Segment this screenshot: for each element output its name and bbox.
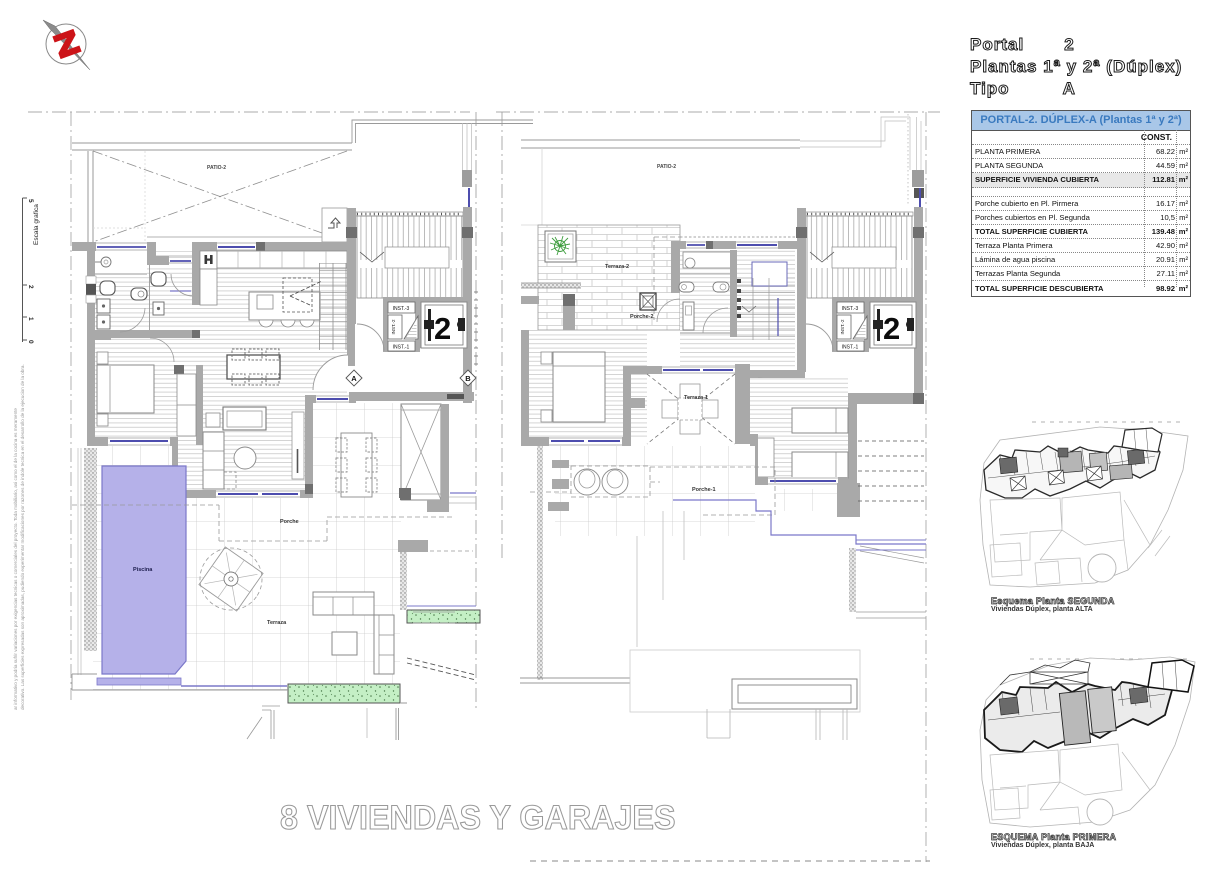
svg-text:INST.-3: INST.-3 [842,306,859,312]
svg-text:Terraza: Terraza [267,620,287,626]
svg-text:Piscina: Piscina [133,567,153,573]
svg-text:INST.-1: INST.-1 [393,345,410,351]
svg-text:INST.-2: INST.-2 [391,319,396,335]
svg-text:Porche-2: Porche-2 [630,314,654,320]
svg-text:PATIO-2: PATIO-2 [657,164,676,170]
svg-text:5: 5 [27,199,34,203]
svg-text:INST.-3: INST.-3 [393,306,410,312]
svg-text:Terraza-1: Terraza-1 [684,395,708,401]
svg-text:INST.-1: INST.-1 [842,345,859,351]
svg-text:2: 2 [434,311,451,346]
svg-text:1: 1 [27,317,34,321]
svg-text:Terraza-2: Terraza-2 [605,264,629,270]
svg-text:decorativo. Las superficies ex: decorativo. Las superficies expresadas s… [20,364,25,710]
svg-text:A: A [351,374,357,383]
svg-text:Escala grafica: Escala grafica [33,204,40,245]
svg-text:PATIO-2: PATIO-2 [207,165,226,171]
svg-text:ar informativo y podria sufrir: ar informativo y podria sufrir variacion… [13,408,18,710]
svg-text:2: 2 [27,285,34,289]
svg-text:INST.-2: INST.-2 [840,319,845,335]
svg-text:Porche: Porche [280,519,299,525]
svg-text:Porche-1: Porche-1 [692,487,716,493]
svg-text:0: 0 [27,340,34,344]
svg-text:B: B [465,374,471,383]
svg-text:2: 2 [883,311,900,346]
